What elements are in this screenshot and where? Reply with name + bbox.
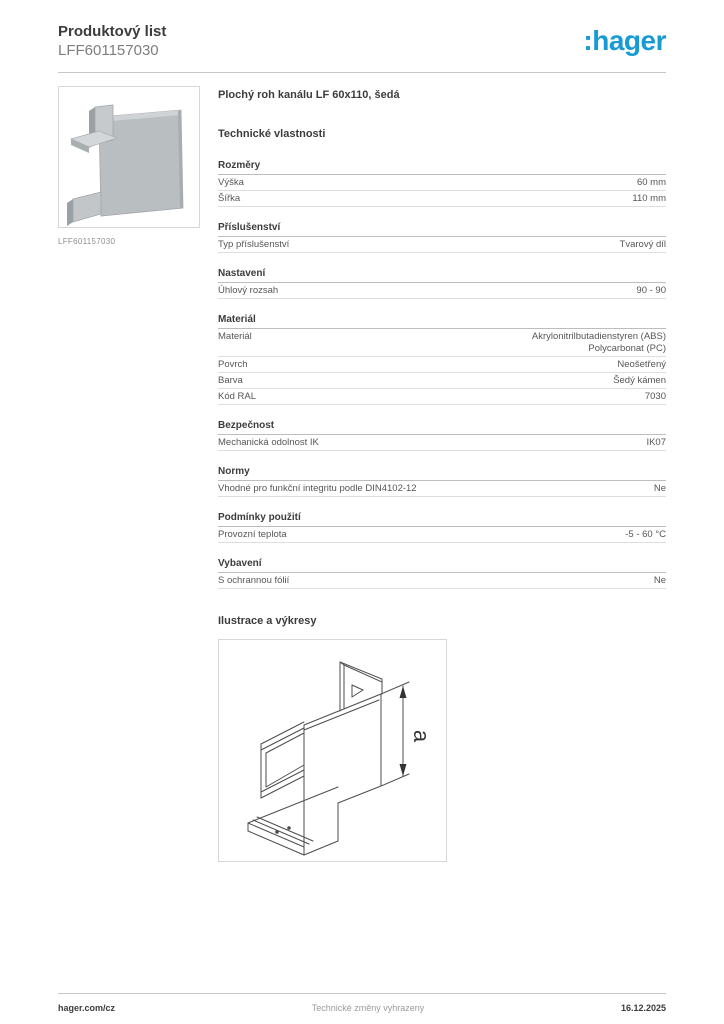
table-row: Výška 60 mm [218,175,666,191]
spec-section: Vybavení S ochrannou fólií Ne [218,558,666,589]
section-title: Bezpečnost [218,420,666,435]
page-footer: hager.com/cz Technické změny vyhrazeny 1… [58,993,666,1013]
row-value: 60 mm [256,177,666,189]
tech-properties-heading: Technické vlastnosti [218,128,666,140]
hager-logo: :hager [583,26,666,56]
product-image-column: LFF601157030 [58,86,200,862]
product-photo [59,87,199,227]
row-value: Neošetřený [260,359,666,371]
row-value: 110 mm [252,193,666,205]
product-code: LFF601157030 [58,41,166,60]
row-value: Ne [429,483,666,495]
spec-section: Podmínky použití Provozní teplota -5 - 6… [218,512,666,543]
illustration-heading: Ilustrace a výkresy [218,615,666,627]
table-row: Kód RAL 7030 [218,389,666,405]
table-row: S ochrannou fólií Ne [218,573,666,589]
row-label: Výška [218,177,256,189]
spec-section: Bezpečnost Mechanická odolnost IK IK07 [218,420,666,451]
spec-section: Nastavení Úhlový rozsah 90 - 90 [218,268,666,299]
section-rows: Provozní teplota -5 - 60 °C [218,527,666,543]
table-row: Mechanická odolnost IK IK07 [218,435,666,451]
section-rows: Úhlový rozsah 90 - 90 [218,283,666,299]
section-title: Normy [218,466,666,481]
row-value: IK07 [331,437,666,449]
table-row: Povrch Neošetřený [218,357,666,373]
product-photo-frame [58,86,200,228]
row-label: S ochrannou fólií [218,575,301,587]
section-title: Nastavení [218,268,666,283]
spec-section: Normy Vhodné pro funkční integritu podle… [218,466,666,497]
spec-section: Rozměry Výška 60 mm Šířka 110 mm [218,160,666,207]
row-value: Šedý kámen [255,375,666,387]
page-header: Produktový list LFF601157030 :hager [58,0,666,73]
section-title: Podmínky použití [218,512,666,527]
row-value: 7030 [268,391,666,403]
row-value: -5 - 60 °C [299,529,666,541]
section-title: Vybavení [218,558,666,573]
row-value: Tvarový díl [301,239,666,251]
spec-section: Příslušenství Typ příslušenství Tvarový … [218,222,666,253]
row-label: Materiál [218,331,264,343]
dimension-label: a [409,729,434,742]
table-row: Provozní teplota -5 - 60 °C [218,527,666,543]
section-title: Rozměry [218,160,666,175]
product-photo-caption: LFF601157030 [58,237,200,246]
tech-sections: Rozměry Výška 60 mm Šířka 110 mm Přísluš… [218,160,666,589]
row-value: Akrylonitrilbutadienstyren (ABS) Polycar… [264,331,666,354]
row-label: Barva [218,375,255,387]
table-row: Materiál Akrylonitrilbutadienstyren (ABS… [218,329,666,357]
row-label: Kód RAL [218,391,268,403]
row-label: Mechanická odolnost IK [218,437,331,449]
doc-type-title: Produktový list [58,22,166,41]
main-content: LFF601157030 Plochý roh kanálu LF 60x110… [58,86,666,862]
section-rows: Materiál Akrylonitrilbutadienstyren (ABS… [218,329,666,405]
technical-drawing: a [219,640,446,861]
row-label: Povrch [218,359,260,371]
section-rows: Výška 60 mm Šířka 110 mm [218,175,666,207]
spec-column: Plochý roh kanálu LF 60x110, šedá Techni… [218,86,666,862]
row-label: Provozní teplota [218,529,299,541]
table-row: Barva Šedý kámen [218,373,666,389]
header-title-block: Produktový list LFF601157030 [58,22,166,60]
product-title: Plochý roh kanálu LF 60x110, šedá [218,89,666,101]
spec-section: Materiál Materiál Akrylonitrilbutadienst… [218,314,666,405]
row-value: 90 - 90 [290,285,666,297]
row-label: Šířka [218,193,252,205]
row-label: Úhlový rozsah [218,285,290,297]
datasheet-page: Produktový list LFF601157030 :hager [58,0,666,862]
technical-drawing-frame: a [218,639,447,862]
section-rows: S ochrannou fólií Ne [218,573,666,589]
row-label: Typ příslušenství [218,239,301,251]
row-value: Ne [301,575,666,587]
section-title: Materiál [218,314,666,329]
footer-disclaimer: Technické změny vyhrazeny [312,1003,425,1013]
section-rows: Vhodné pro funkční integritu podle DIN41… [218,481,666,497]
section-rows: Typ příslušenství Tvarový díl [218,237,666,253]
table-row: Šířka 110 mm [218,191,666,207]
table-row: Typ příslušenství Tvarový díl [218,237,666,253]
footer-website-link[interactable]: hager.com/cz [58,1003,115,1013]
row-label: Vhodné pro funkční integritu podle DIN41… [218,483,429,495]
section-rows: Mechanická odolnost IK IK07 [218,435,666,451]
table-row: Úhlový rozsah 90 - 90 [218,283,666,299]
section-title: Příslušenství [218,222,666,237]
table-row: Vhodné pro funkční integritu podle DIN41… [218,481,666,497]
footer-date: 16.12.2025 [621,1003,666,1013]
